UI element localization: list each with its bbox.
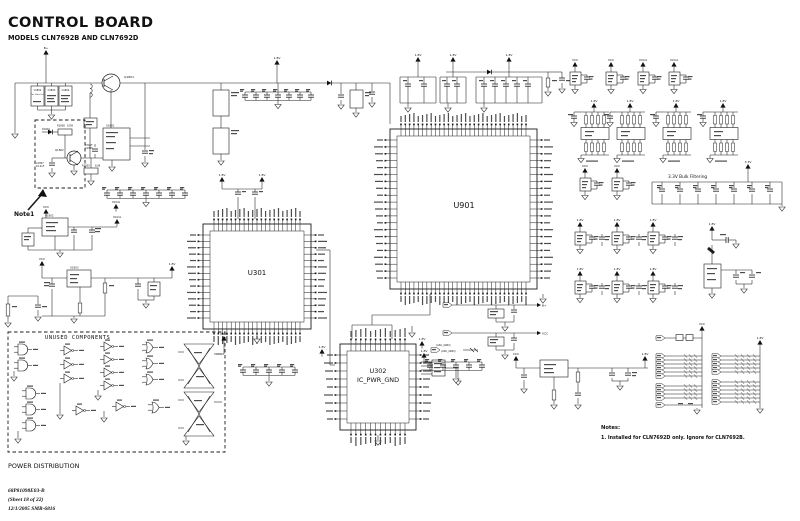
label-smudge [419,80,423,81]
label-smudge [707,279,716,280]
schematic-graphics: B+1.8V1.8V1.8V1.8V1.8V1.8VVCCA1.8V1.8VVC… [5,46,785,452]
label-smudge [577,287,582,288]
ic-pin-pad [335,362,337,364]
ic-pin-pad [335,386,337,388]
ground-symbol [353,113,359,117]
ic-pin-pad [478,124,480,126]
label-smudge [128,187,132,188]
label-smudge [544,174,553,175]
ref-r1808: R1808 [57,125,65,128]
label-smudge [91,410,96,411]
label-smudge [517,113,518,122]
power-label: VCC [572,58,578,62]
label-smudge [188,273,196,274]
label-smudge [688,79,692,80]
label-smudge [599,182,604,183]
label-smudge [667,239,671,240]
label-smudge [552,80,557,81]
ic-pin-pad [420,354,422,356]
ic-pin-pad [239,333,241,335]
ground-symbol [741,289,747,293]
label-smudge [713,385,717,386]
label-smudge [608,81,612,82]
power-arrow [591,103,596,108]
label-smudge [582,184,587,185]
ic-u301-label: U301 [248,269,266,277]
ic-pin-pad [315,241,317,243]
label-smudge [657,375,661,376]
label-smudge [376,243,383,244]
ground-symbol [650,250,656,254]
label-smudge [544,202,553,203]
transistor-q1802 [67,151,81,165]
label-smudge [568,114,573,115]
label-smudge [491,115,492,122]
power-label: 1.8V [577,267,585,271]
label-smudge [42,306,47,307]
ic-pin-pad [335,418,337,420]
label-smudge [478,114,479,122]
ic-pin-pad [315,260,317,262]
ic-pin-pad [508,124,510,126]
label-smudge [577,284,583,285]
power-label: B+ [44,46,49,50]
label-smudge [360,437,361,445]
label-smudge [278,208,279,217]
label-smudge [504,296,505,302]
label-smudge [650,284,656,285]
label-smudge [435,116,436,122]
label-smudge [423,402,431,403]
inverter-gate [104,381,112,390]
label-smudge [713,363,717,364]
power-label: VCCA [113,215,122,219]
label-smudge [585,135,592,136]
ground-symbol [582,196,588,200]
label-smudge [41,425,46,426]
label-smudge [479,80,483,81]
ic-pin-pad [541,250,543,252]
label-smudge [374,174,383,175]
label-smudge [625,79,629,80]
label-smudge [231,211,232,217]
ref-u1801: U1801 [106,124,115,128]
label-smudge [119,346,124,347]
label-smudge [119,359,124,360]
ic-pin-pad [315,266,317,268]
label-smudge [259,191,263,192]
ground-symbol [57,253,63,257]
label-smudge [589,79,593,80]
ic-pin-pad [235,333,237,335]
label-smudge [667,288,671,289]
power-label: VCCA [112,200,121,204]
label-smudge [291,209,292,217]
label-smudge [399,437,400,445]
ic-pin-pad [350,339,352,341]
ic-pin-pad [335,354,337,356]
resistor-symbol [621,143,624,152]
label-smudge [149,150,154,151]
resistor-symbol [103,283,107,293]
label-smudge [622,161,634,162]
label-smudge [508,296,509,305]
label-smudge [438,359,442,360]
label-smudge [713,367,717,368]
label-smudge [324,362,333,363]
label-smudge [715,161,727,162]
ic-pin-pad [315,253,317,255]
label-smudge [594,239,598,240]
power-arrow [614,222,619,227]
ground-symbol [614,250,620,254]
label-smudge [765,185,770,186]
label-smudge [251,91,254,92]
label-smudge [657,79,661,80]
top-left-power-input: B+ [12,46,390,188]
label-smudge [190,285,196,286]
ic-pin-pad [512,293,514,295]
label-smudge [377,277,383,278]
ic-pin-pad [495,293,497,295]
resistor-symbol [591,116,594,125]
label-smudge [180,187,184,188]
ground-symbol [183,441,189,445]
label-smudge [697,114,702,115]
label-smudge [65,344,70,345]
ground-symbol [502,327,508,331]
component-box [617,128,645,140]
label-smudge [117,400,122,401]
label-smudge [525,296,526,305]
inverter-gate [64,346,72,355]
ic-pin-pad [399,339,401,341]
and-gate [18,344,28,355]
ic-pin-pad [400,293,402,295]
label-smudge [422,115,423,122]
dual-amp-symbol [184,392,214,412]
label-smudge [375,181,383,182]
power-arrow [513,356,518,361]
label-smudge [187,266,196,267]
footer-sheet: (Sheet 18 of 22) [8,496,43,503]
power-arrow [699,326,704,331]
label-smudge [544,236,552,237]
label-smudge [431,113,432,122]
ic-pin-pad [198,311,200,313]
label-smudge [106,148,114,149]
ic-pin-pad [541,139,543,141]
ic-pin-pad [448,124,450,126]
label-smudge [24,239,29,240]
label-smudge [667,236,672,237]
power-label: 1.8V [319,345,327,349]
label-smudge [190,260,196,261]
label-smudge [477,359,481,360]
notes-title: Notes: [601,425,620,431]
power-label: 1.8V [274,56,282,60]
and-gate [26,420,36,431]
label-smudge [390,437,391,443]
label-smudge [400,116,401,122]
label-smudge [318,311,324,312]
ground-symbol [143,203,149,207]
label-smudge [474,115,475,122]
label-smudge [448,296,449,303]
component-box [676,335,683,341]
label-smudge [252,210,253,217]
label-smudge [439,115,440,122]
label-smudge [544,243,551,244]
ic-pin-pad [443,124,445,126]
label-smudge [262,91,265,92]
label-smudge [291,336,292,344]
resistor-symbol [667,143,670,152]
label-smudge [657,355,661,356]
label-smudge [577,238,582,239]
label-smudge [671,75,677,76]
label-smudge [147,356,153,357]
dual-amp-symbol [184,344,214,364]
ic-pin-pad [335,378,337,380]
resistor-symbol [627,116,630,125]
ground-symbol [35,317,41,321]
label-smudge [231,92,239,93]
label-smudge [707,268,717,269]
label-smudge [631,288,635,289]
ground-symbol [640,90,646,94]
ic-pin-pad [315,317,317,319]
ground-symbol [660,159,666,163]
label-smudge [614,184,619,185]
ground-symbol [481,108,487,112]
resistor-symbol [732,116,735,125]
label-smudge [464,359,468,360]
ic-pin-pad [541,263,543,265]
ref-d1801: D1801 [42,128,50,131]
label-smudge [544,195,550,196]
label-smudge [423,394,432,395]
ic-pin-pad [385,139,387,141]
ic-pin-pad [385,236,387,238]
ic-pin-pad [230,219,232,221]
ic-pin-pad [541,236,543,238]
label-smudge [377,250,383,251]
power-arrow [274,60,279,65]
ref-asc-gnd-1: (ASC_GND) [436,343,451,347]
label-smudge [374,202,383,203]
label-smudge [451,359,455,360]
ic-pin-pad [355,339,357,341]
resistor-symbol [603,143,606,152]
ref-q1801: Q1801 [124,75,134,79]
ic-pin-pad [295,219,297,221]
left-regulators: VCCVCCAVCC1.8V [5,205,177,327]
label-smudge [390,331,391,337]
label-smudge [657,363,661,364]
ic-pin-pad [435,124,437,126]
ic-pin-pad [213,219,215,221]
footer-part-number: 68P81098E03-B [8,488,45,494]
label-smudge [188,247,196,248]
label-smudge [147,372,153,373]
ic-pin-pad [541,277,543,279]
ic-pin-pad [385,229,387,231]
label-smudge [631,185,635,186]
ground-symbol [707,159,713,163]
ic-pin-pad [350,434,352,436]
label-smudge [27,386,33,387]
power-arrow [219,177,224,182]
label-smudge [147,340,153,341]
ic-pin-pad [541,174,543,176]
ic-pin-pad [375,339,377,341]
label-smudge [500,113,501,122]
ic-pin-pad [394,339,396,341]
label-smudge [577,235,583,236]
ic-pin-pad [491,293,493,295]
ic-pin-pad [365,339,367,341]
label-smudge [425,359,429,360]
ic-pin-pad [512,124,514,126]
label-smudge [490,339,498,340]
ic-pin-pad [541,167,543,169]
resistor-symbol [576,372,580,382]
ic-pin-pad [473,124,475,126]
ground-symbol [577,299,583,303]
label-smudge [295,208,296,217]
schematic-labels: CONTROL BOARD MODELS CLN7692B AND CLN769… [8,15,745,512]
label-smudge [405,296,406,305]
label-smudge [235,210,236,217]
power-arrow [757,340,762,345]
power-arrow [650,222,655,227]
label-smudge [262,89,266,90]
component-box [58,129,72,135]
power-label: 1.8V [720,99,728,103]
label-smudge [599,185,603,186]
diode-symbol [487,70,491,75]
power-arrow [614,271,619,276]
label-smudge [418,296,419,302]
label-smudge [295,336,296,343]
label-smudge [290,366,293,367]
label-smudge [650,287,655,288]
ic-pin-pad [286,219,288,221]
resistor-symbol [627,143,630,152]
power-arrow [642,356,647,361]
power-arrow [577,271,582,276]
label-smudge [282,336,283,342]
label-smudge [295,89,299,90]
ground-symbol [575,405,581,409]
ic-pin-pad [541,194,543,196]
ground-symbol [369,103,375,107]
label-smudge [614,238,619,239]
ic-pin-pad [385,250,387,252]
label-smudge [729,187,733,188]
label-smudge [165,407,170,408]
label-smudge [318,266,327,267]
label-smudge [306,89,310,90]
label-smudge [150,285,157,286]
ic-pin-pad [385,434,387,436]
mid-rail-filters: 1.8V [213,56,390,165]
label-smudge [678,236,683,237]
label-smudge [729,185,734,186]
label-smudge [452,80,456,81]
u901-bypass-caps: 1.8V1.8V1.8V [400,53,571,112]
label-smudge [261,336,262,343]
label-smudge [102,189,105,190]
label-smudge [650,114,655,115]
label-smudge [625,76,630,77]
power-arrow [419,341,424,346]
label-smudge [47,95,56,96]
rail-arrowhead [537,331,541,335]
label-smudge [261,208,262,217]
ic-pin-pad [385,243,387,245]
ic-pin-pad [409,124,411,126]
power-arrow [614,168,619,173]
label-smudge [713,393,717,394]
ground-symbol [650,299,656,303]
ic-pin-pad [315,273,317,275]
label-smudge [318,292,327,293]
ic-pin-pad [315,279,317,281]
power-label: VCCA [220,332,229,336]
label-smudge [41,393,46,394]
label-smudge [239,209,240,217]
label-smudge [375,153,383,154]
schematic-page: B+1.8V1.8V1.8V1.8V1.8V1.8VVCCA1.8V1.8VVC… [0,0,800,521]
inverter-gate [64,360,72,369]
ref-u1803: U1803 [70,266,79,270]
power-arrow [169,266,174,271]
ground-symbol [142,163,148,167]
label-smudge [222,209,223,217]
ic-pin-pad [385,181,387,183]
label-smudge [265,336,266,342]
label-smudge [713,381,717,382]
label-smudge [631,285,636,286]
schematic-canvas: B+1.8V1.8V1.8V1.8V1.8V1.8VVCCA1.8V1.8VVC… [0,0,800,521]
ground-symbol [95,396,101,400]
label-smudge [544,271,551,272]
power-label: 1.8V [642,352,650,356]
label-smudge [544,229,553,230]
label-smudge [119,385,124,386]
label-smudge [577,241,581,242]
power-label: VCC [43,205,49,209]
resistor-symbol [603,116,606,125]
label-smudge [61,98,68,99]
label-smudge [405,115,406,122]
ic-pin-pad [521,124,523,126]
ic-pin-pad [525,124,527,126]
right-filter-grid: VCCVCCVCCAVCCA1.8V1.8V1.8V1.8VVCCVCC1.8V… [568,58,761,303]
or-gate [152,402,159,413]
ic-pin-pad [370,339,372,341]
ic-pin-pad [385,201,387,203]
label-smudge [375,236,383,237]
label-smudge [106,142,116,143]
label-smudge [235,336,236,345]
label-smudge [657,185,662,186]
label-smudge [423,370,431,371]
ground-symbol [545,92,551,96]
label-smudge [194,352,202,353]
